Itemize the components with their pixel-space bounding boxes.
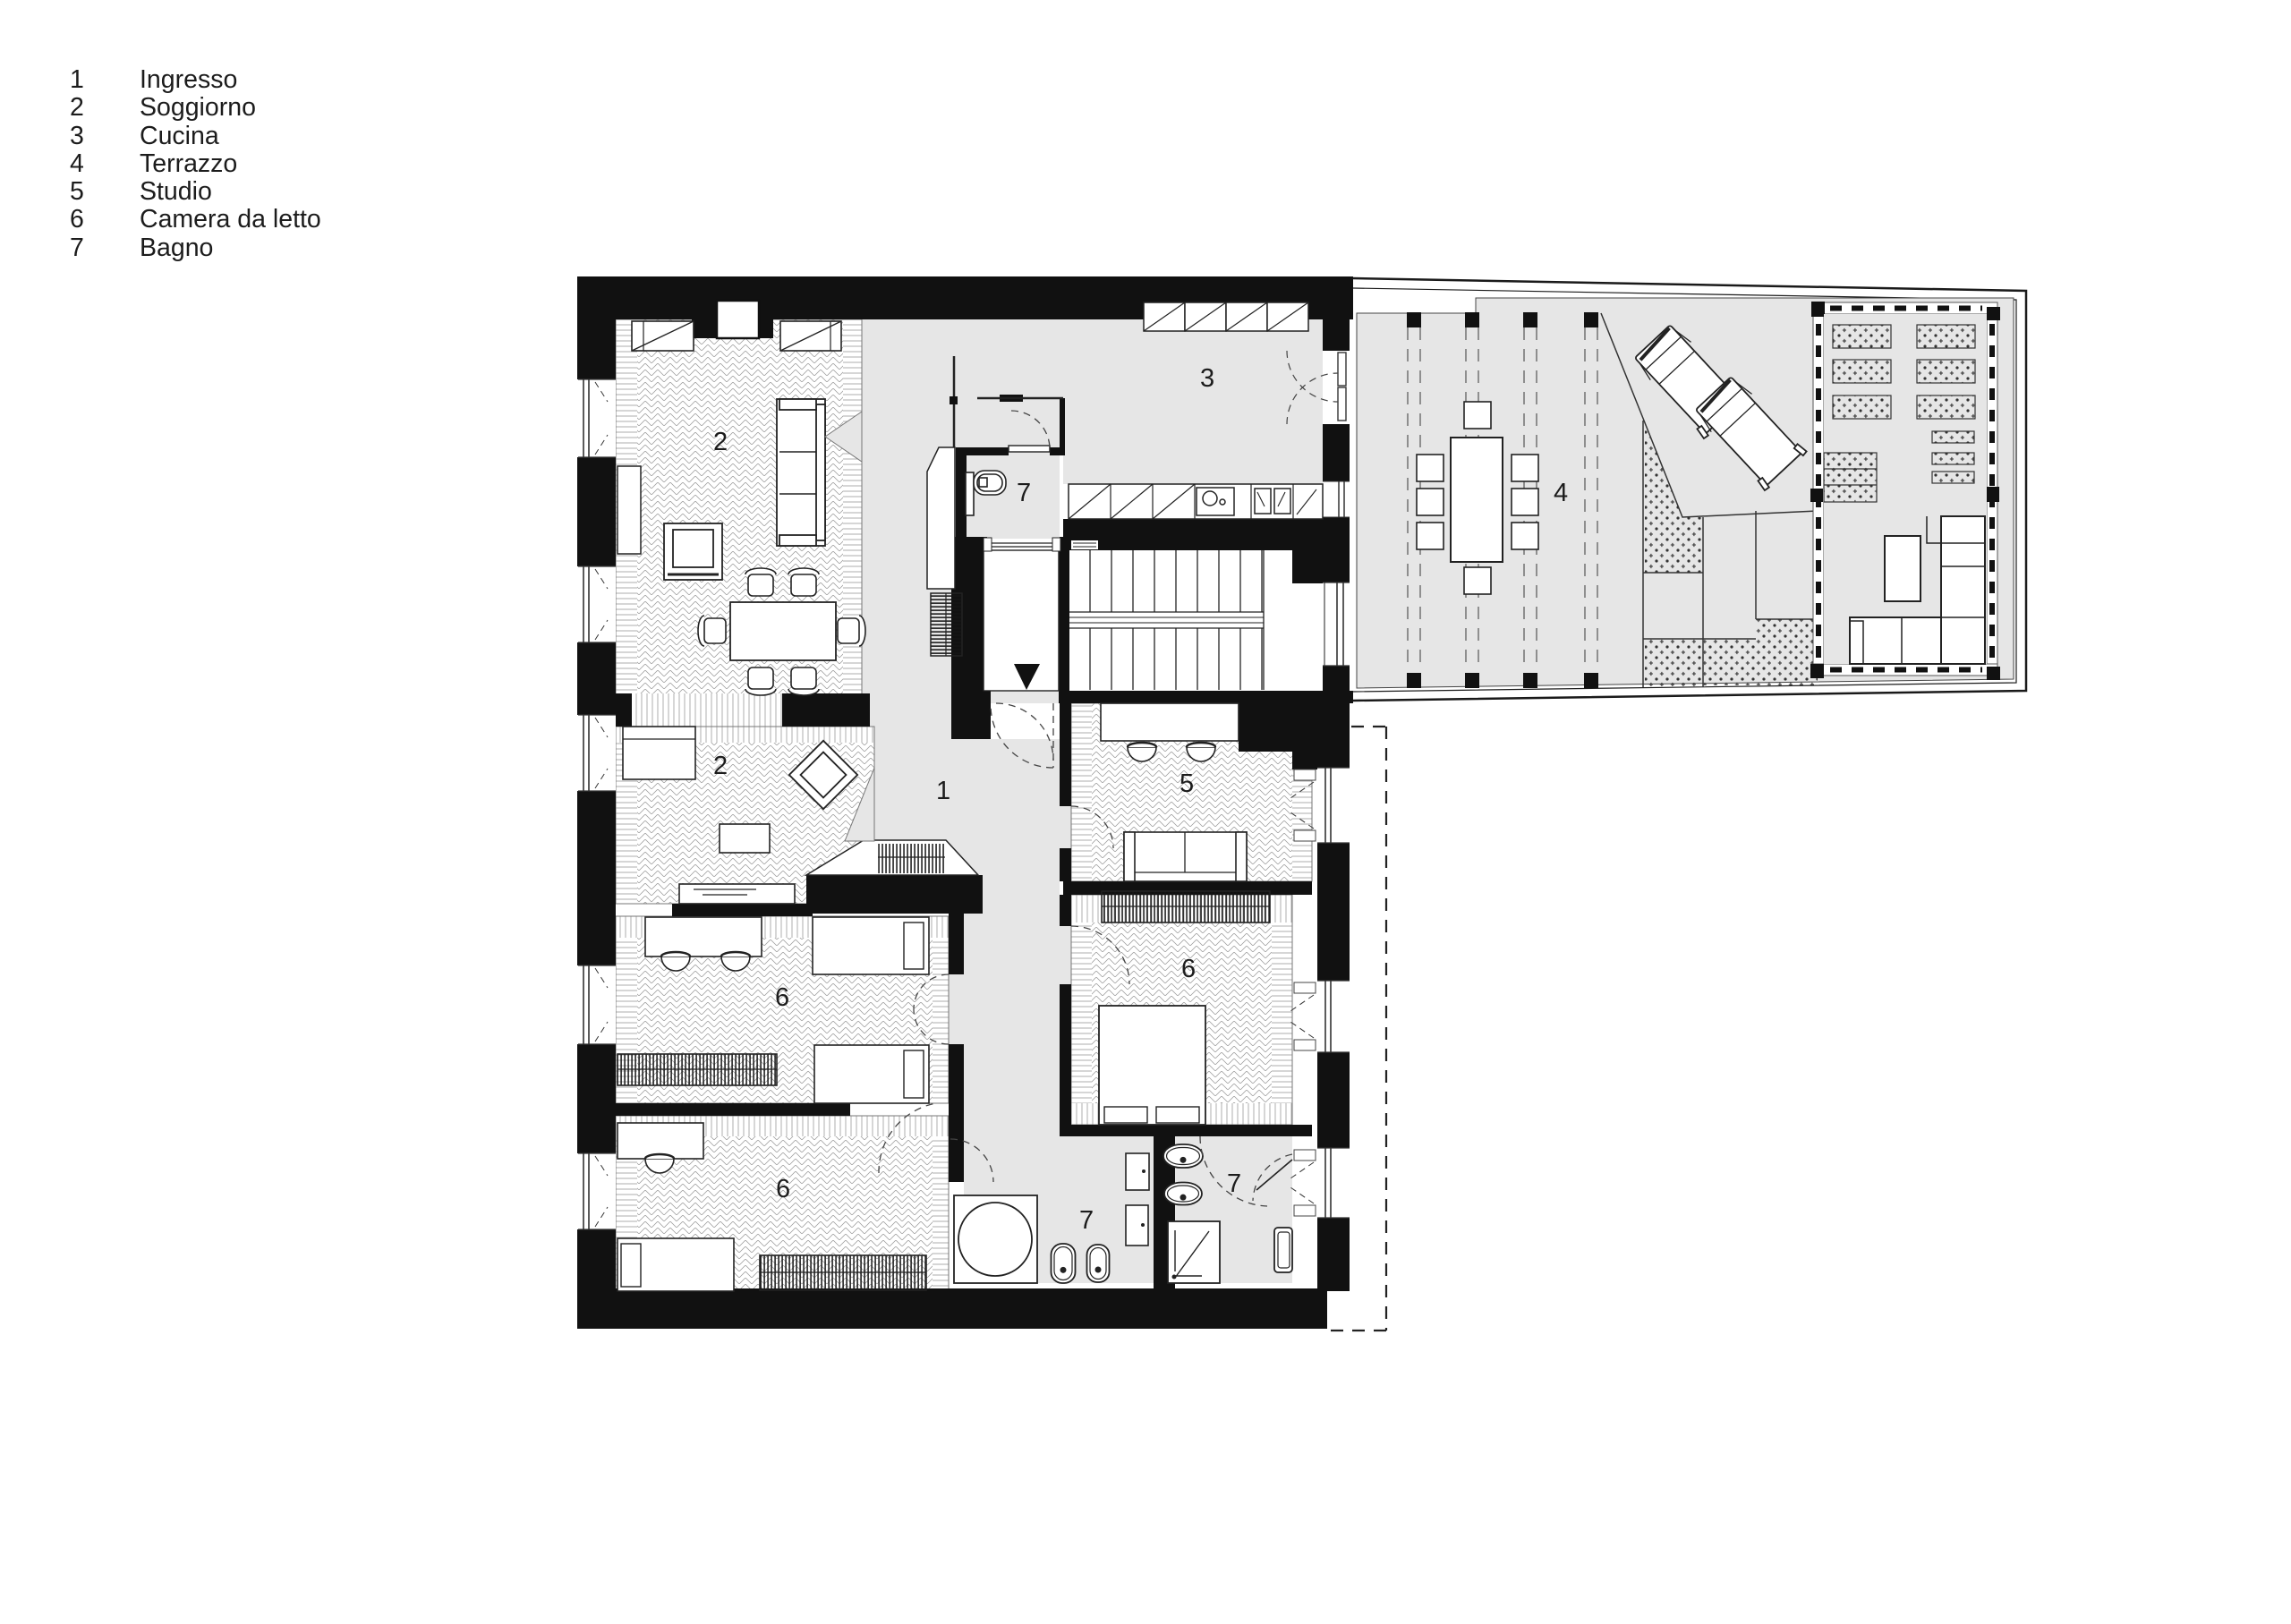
svg-text:6: 6 (1181, 955, 1196, 983)
svg-text:3: 3 (1200, 364, 1214, 393)
svg-text:6: 6 (70, 205, 84, 234)
svg-text:1: 1 (70, 65, 84, 94)
svg-text:3: 3 (70, 122, 84, 150)
svg-text:5: 5 (70, 177, 84, 206)
svg-text:7: 7 (1079, 1206, 1094, 1235)
svg-text:4: 4 (1554, 479, 1568, 507)
svg-text:Bagno: Bagno (140, 234, 213, 262)
svg-text:Studio: Studio (140, 177, 212, 206)
svg-text:4: 4 (70, 149, 84, 178)
svg-text:Camera da letto: Camera da letto (140, 205, 321, 234)
svg-text:6: 6 (775, 983, 789, 1012)
svg-text:Ingresso: Ingresso (140, 65, 237, 94)
svg-text:2: 2 (713, 752, 728, 780)
svg-text:7: 7 (1017, 479, 1031, 507)
svg-text:Terrazzo: Terrazzo (140, 149, 237, 178)
svg-text:2: 2 (713, 428, 728, 456)
svg-text:6: 6 (776, 1175, 790, 1203)
svg-text:1: 1 (936, 777, 950, 805)
svg-text:Soggiorno: Soggiorno (140, 93, 256, 122)
svg-text:2: 2 (70, 93, 84, 122)
svg-text:Cucina: Cucina (140, 122, 219, 150)
svg-text:7: 7 (1227, 1169, 1241, 1198)
svg-text:5: 5 (1180, 769, 1194, 798)
svg-text:7: 7 (70, 234, 84, 262)
